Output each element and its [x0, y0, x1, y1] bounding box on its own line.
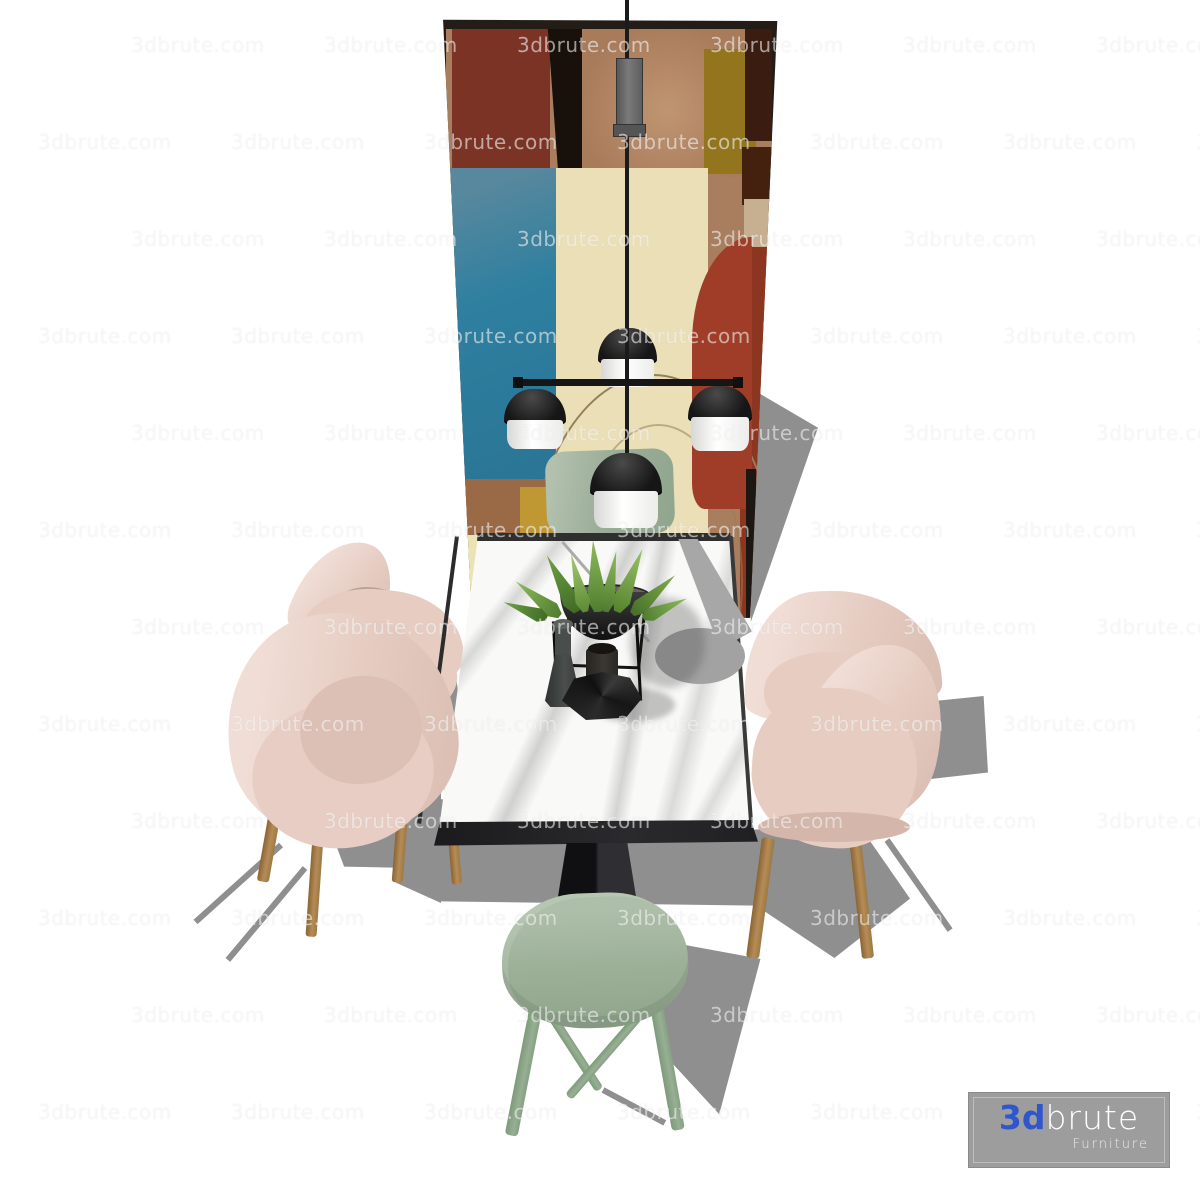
lamp-head-right-dome: [688, 386, 752, 421]
flask-mouth: [553, 619, 573, 629]
tabletop-edge-top: [440, 533, 752, 541]
watermark-text: 3dbrute.com: [810, 1100, 944, 1124]
watermark-text: 3dbrute.com: [231, 1100, 365, 1124]
logo-3d-text: 3d: [999, 1098, 1046, 1137]
stool-seat: [500, 890, 691, 1031]
logo-brute-text: brute: [1045, 1098, 1139, 1137]
scene-canvas: 3dbrute.com3dbrute.com3dbrute.com3dbrute…: [0, 0, 1200, 1200]
stool-leg-left-outer: [505, 999, 544, 1137]
watermark-text: 3dbrute.com: [1196, 712, 1200, 736]
lamp-bar-endcap-left: [513, 377, 523, 388]
watermark-text: 3dbrute.com: [38, 1100, 172, 1124]
watermark-text: 3dbrute.com: [1096, 809, 1200, 833]
lamp-fixture-cap: [613, 124, 646, 137]
lamp-bar: [517, 379, 739, 386]
jar-mouth: [588, 643, 616, 654]
logo-subtitle: Furniture: [1073, 1137, 1149, 1152]
lamp-bar-endcap-right: [733, 377, 743, 388]
chair-right-front-seat-edge: [758, 812, 910, 842]
watermark-text: 3dbrute.com: [324, 1003, 458, 1027]
watermark-text: 3dbrute.com: [131, 1003, 265, 1027]
stool-leg-shadow-1: [602, 1087, 667, 1125]
lamp-head-right-shade: [691, 417, 749, 451]
watermark-text: 3dbrute.com: [903, 809, 1037, 833]
watermark-text: 3dbrute.com: [424, 1100, 558, 1124]
watermark-text: 3dbrute.com: [1003, 906, 1137, 930]
lamp-head-front-dome: [590, 453, 662, 495]
lamp-ceiling-fixture: [616, 58, 643, 128]
watermark-text: 3dbrute.com: [38, 906, 172, 930]
logo-wordmark: 3dbrute: [969, 1101, 1169, 1135]
watermark-text: 3dbrute.com: [1003, 712, 1137, 736]
watermark-text: 3dbrute.com: [38, 712, 172, 736]
watermark-text: 3dbrute.com: [903, 1003, 1037, 1027]
watermark-text: 3dbrute.com: [131, 809, 265, 833]
watermark-text: 3dbrute.com: [1096, 1003, 1200, 1027]
pendant-lamp: [0, 0, 1200, 600]
lamp-head-left-dome: [504, 389, 566, 424]
lamp-head-left-shade: [507, 420, 563, 449]
watermark-text: 3dbrute.com: [1096, 615, 1200, 639]
watermark-text: 3dbrute.com: [1196, 1100, 1200, 1124]
lamp-head-front-shade: [594, 491, 658, 528]
watermark-text: 3dbrute.com: [1196, 906, 1200, 930]
brand-logo-badge: 3dbrute Furniture: [968, 1092, 1170, 1168]
watermark-text: 3dbrute.com: [131, 615, 265, 639]
